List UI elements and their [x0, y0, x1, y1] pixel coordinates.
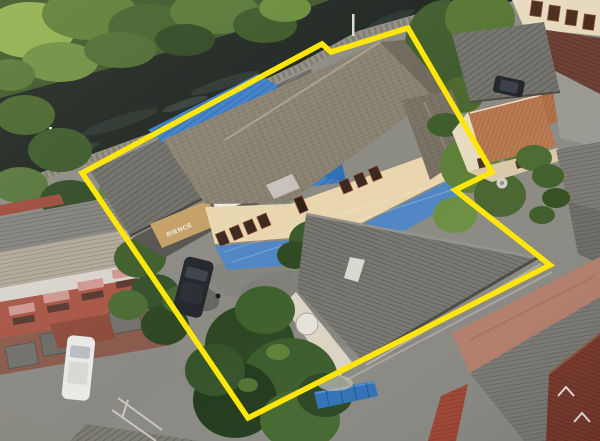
light-overlay: [0, 0, 600, 441]
aerial-photo: RIENCE: [0, 0, 600, 441]
aerial-photo-canvas: RIENCE: [0, 0, 600, 441]
